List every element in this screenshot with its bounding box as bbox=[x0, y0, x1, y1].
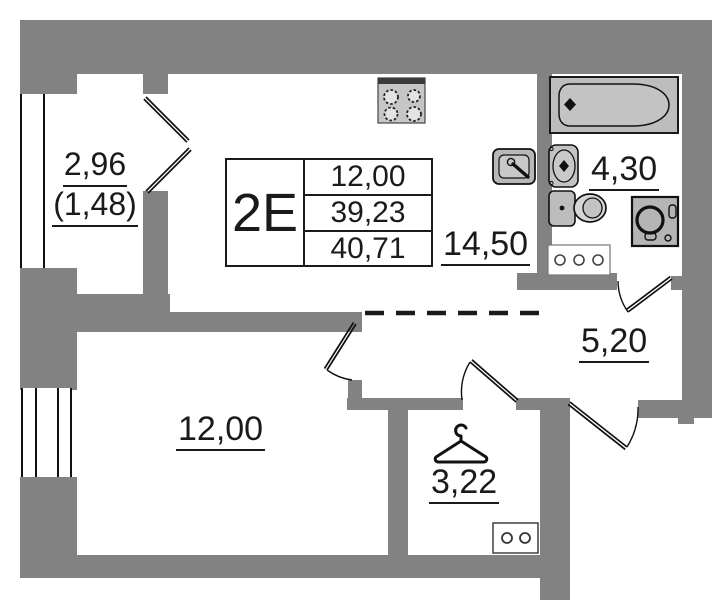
electrical-panel-icon bbox=[493, 523, 538, 553]
balcony-area-value: 2,96 bbox=[63, 147, 127, 187]
unit-living-area: 12,00 bbox=[305, 160, 431, 194]
wardrobe-area-label: 3,22 bbox=[429, 465, 499, 504]
floor-plan: 2,96 (1,48) 2E 12,00 39,23 40,71 14,50 4… bbox=[0, 0, 726, 600]
balcony-area-secondary-value: (1,48) bbox=[52, 187, 138, 227]
wall-wardrobe-top-left bbox=[347, 398, 463, 410]
unit-area-without-balcony: 39,23 bbox=[305, 194, 431, 230]
hallway-area-label: 5,20 bbox=[579, 324, 649, 363]
wall-bathroom-door-stub bbox=[671, 276, 683, 290]
door-swing-arc bbox=[461, 362, 470, 400]
wall-hallway-bottom bbox=[638, 400, 705, 418]
wall-pillar-left-mid bbox=[20, 268, 77, 390]
wardrobe-door bbox=[461, 360, 518, 402]
bedroom-area-label: 12,00 bbox=[176, 412, 265, 451]
balcony-area-label: 2,96 (1,48) bbox=[40, 147, 150, 227]
wall-right bbox=[682, 74, 712, 418]
unit-area-rows: 12,00 39,23 40,71 bbox=[305, 160, 431, 265]
wall-pillar-top-left bbox=[20, 74, 77, 94]
entrance-door bbox=[568, 402, 638, 449]
wall-bedroom-door-stub bbox=[348, 380, 362, 398]
wall-hallway-bottom-notch bbox=[678, 418, 694, 424]
washbasin-icon bbox=[549, 145, 578, 187]
wall-wardrobe-left bbox=[388, 410, 408, 557]
unit-total-area: 40,71 bbox=[305, 230, 431, 266]
ventilation-grille-icon bbox=[548, 245, 610, 275]
wall-bathroom-bottom bbox=[517, 273, 617, 290]
toilet-icon bbox=[549, 191, 606, 226]
stove-icon bbox=[378, 78, 425, 123]
unit-type-label: 2E bbox=[227, 160, 305, 265]
door-swing-arc bbox=[627, 407, 638, 447]
balcony-door-icon bbox=[144, 97, 191, 193]
wall-kitchen-bathroom-divider bbox=[537, 74, 552, 290]
bathtub-icon bbox=[550, 77, 678, 133]
washing-machine-icon bbox=[632, 197, 678, 246]
bathroom-door bbox=[618, 277, 672, 312]
wall-pillar-left-bottom bbox=[20, 477, 77, 557]
door-swing-arc bbox=[327, 370, 352, 380]
wall-top bbox=[20, 20, 712, 74]
bathroom-area-label: 4,30 bbox=[589, 152, 659, 191]
wall-wardrobe-right bbox=[540, 398, 570, 600]
wall-bottom bbox=[20, 555, 570, 578]
wall-balcony-right-top bbox=[143, 74, 168, 94]
kitchen-sink-icon bbox=[493, 149, 535, 184]
hanger-icon bbox=[435, 425, 487, 462]
wall-bedroom-top bbox=[72, 312, 362, 332]
unit-info-table: 2E 12,00 39,23 40,71 bbox=[225, 158, 433, 267]
kitchen-living-area-label: 14,50 bbox=[441, 227, 530, 266]
bedroom-window bbox=[21, 388, 72, 477]
door-swing-arc bbox=[618, 281, 628, 312]
